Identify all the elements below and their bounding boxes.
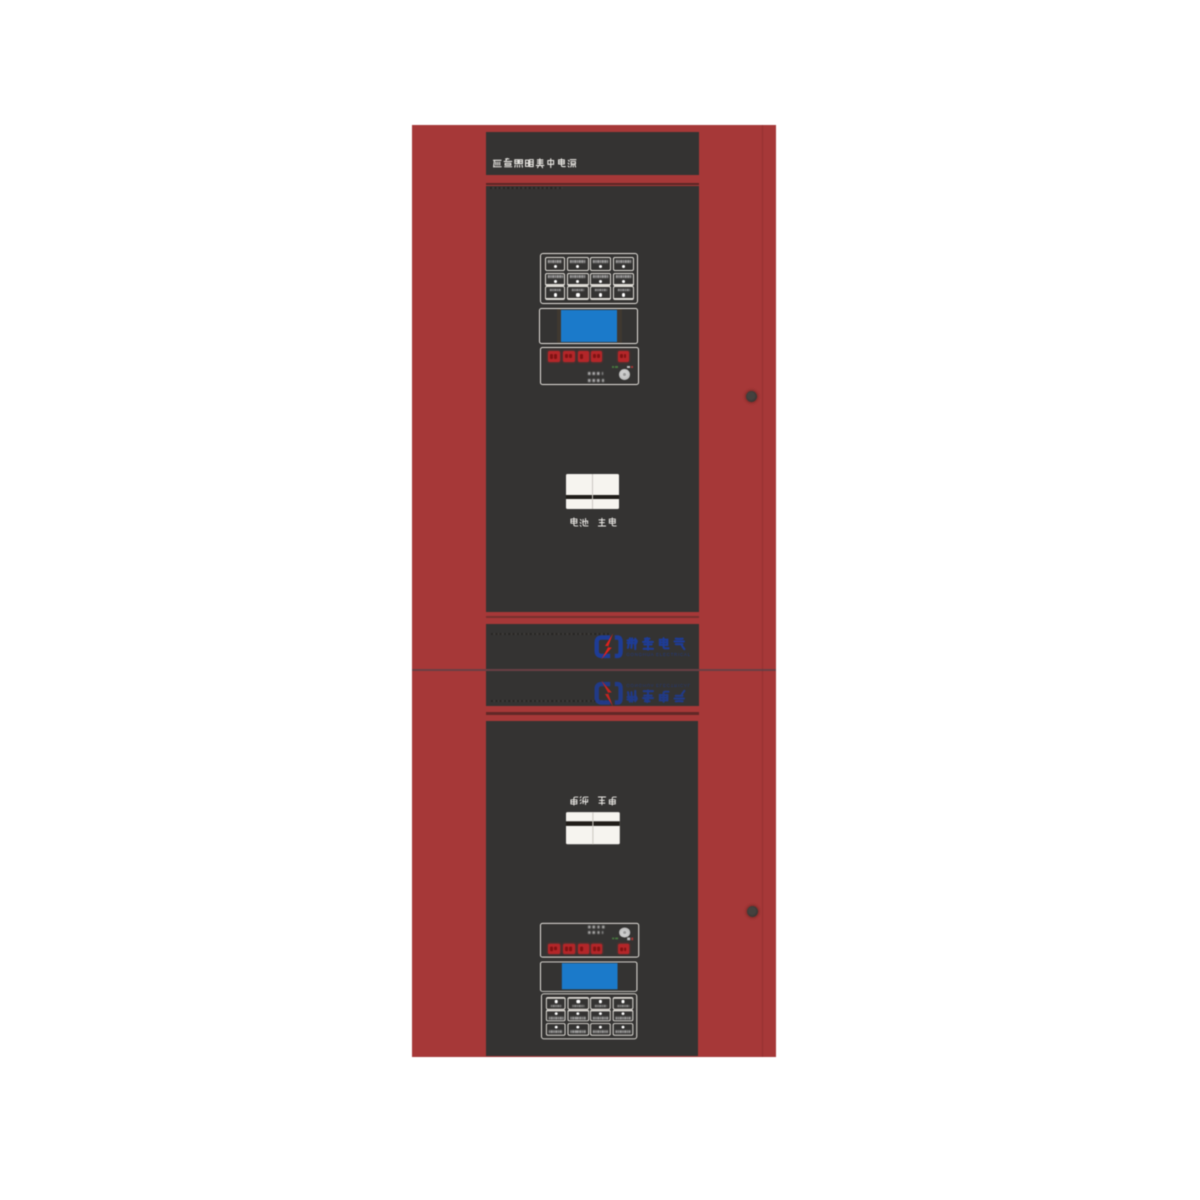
svg-text:GONGHUA ELECTRICAL: GONGHUA ELECTRICAL [626,652,691,657]
svg-text:GONGHUA ELECTRICAL: GONGHUA ELECTRICAL [626,683,691,688]
